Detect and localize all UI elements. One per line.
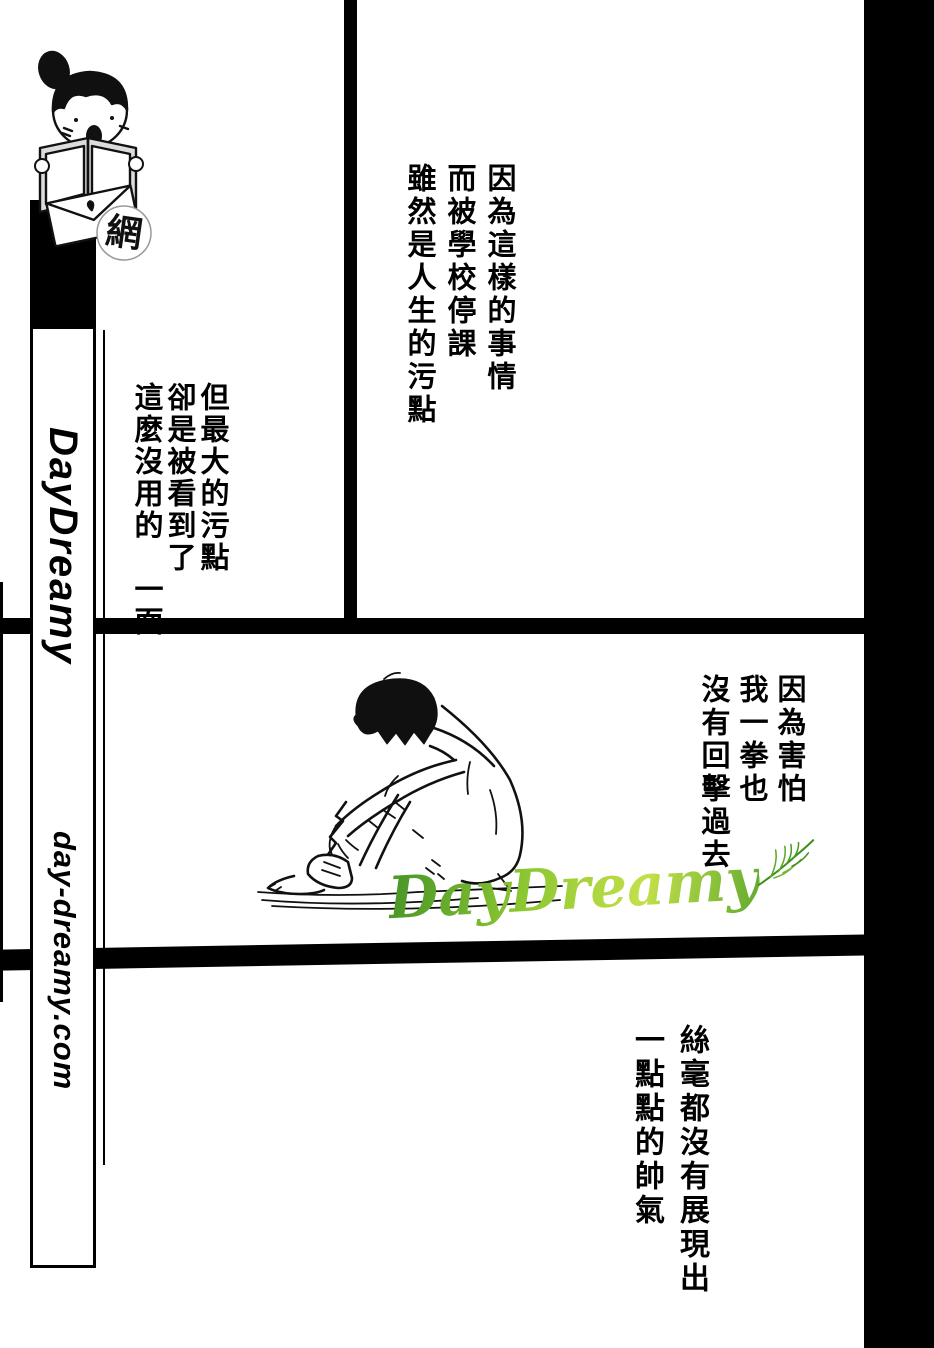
panel-divider-vertical [344,0,357,634]
feather-icon [753,833,818,894]
site-name-vertical: DayDreamy [40,427,85,665]
speech-text-not-cool: 絲毫都沒有展現出 一點點的帥氣 [624,1024,714,1296]
site-url-vertical: day-dreamy.com [46,831,82,1090]
manga-page: 因為這樣的事情 而被學校停課 雖然是人生的污點 但最大的污點 卻是被看到了 這麼… [0,0,934,1348]
daydreamy-watermark: DayDreamy [386,847,819,941]
speech-text-biggest-stain: 但最大的污點 卻是被看到了 這麼沒用的 一面 [129,382,228,638]
panel-border-top [0,618,866,634]
web-badge: 網 [97,206,151,260]
page-right-margin-bar [864,0,934,1348]
panel-border-bottom [0,934,872,970]
web-badge-character: 網 [103,210,144,256]
sidebar-outer-rule [103,330,105,1165]
sidebar-frame: DayDreamy day-dreamy.com [30,326,96,1268]
watermark-logo-text: DayDreamy [386,850,761,941]
page-left-edge-line [0,582,3,1002]
speech-text-suspension: 因為這樣的事情 而被學校停課 雖然是人生的污點 [399,163,519,427]
mascot-girl-icon: 網 [18,48,168,263]
